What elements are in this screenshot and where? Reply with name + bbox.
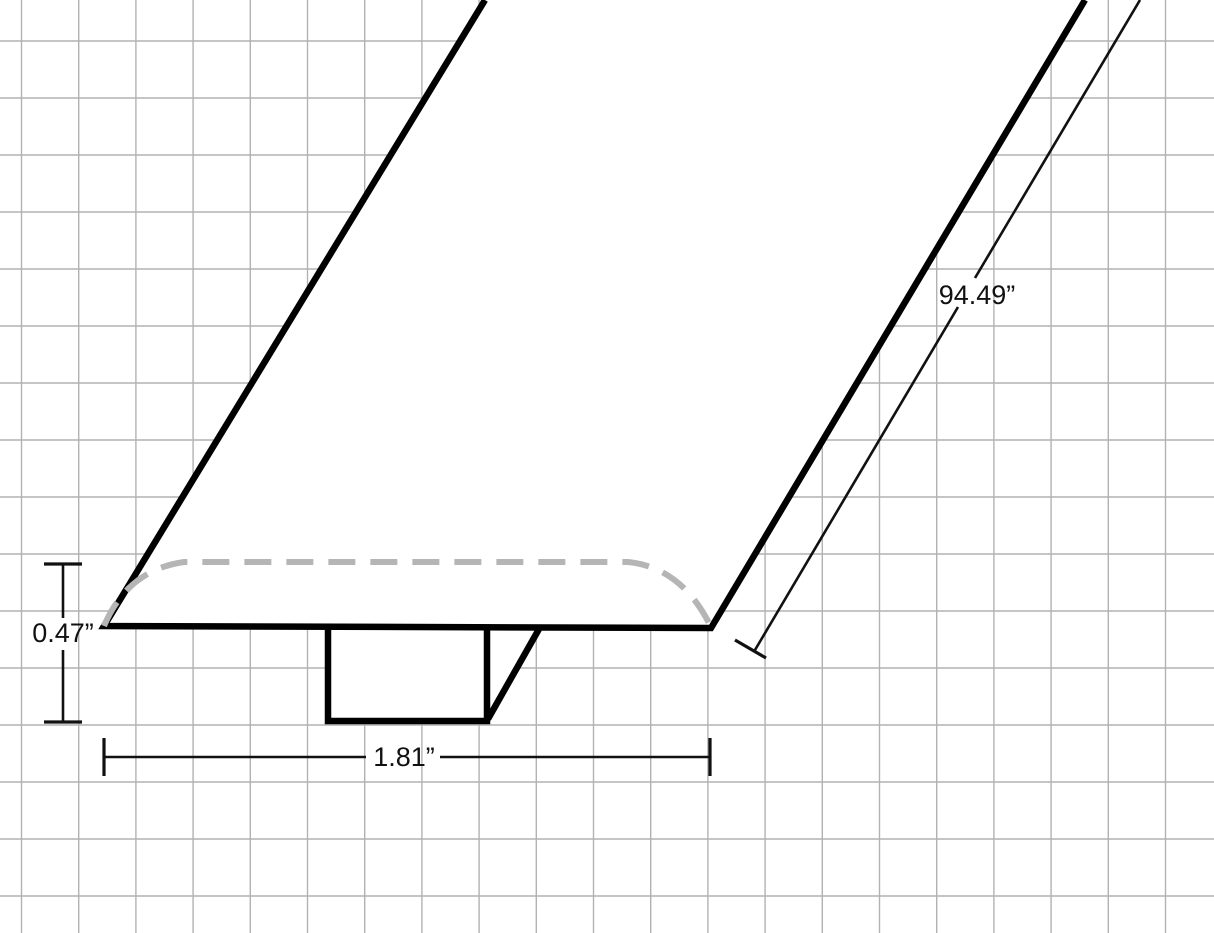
molding-surface <box>104 0 1085 721</box>
width-dimension: 1.81” <box>104 738 710 776</box>
length-dim-bottom-tick <box>735 640 766 658</box>
height-dimension: 0.47” <box>32 564 94 722</box>
height-dim-label: 0.47” <box>32 618 94 648</box>
drawing-sheet: 0.47” 1.81” 94.49” <box>0 0 1214 933</box>
width-dim-label: 1.81” <box>373 742 435 772</box>
t-molding-profile-drawing: 0.47” 1.81” 94.49” <box>0 0 1214 933</box>
length-dim-label: 94.49” <box>939 280 1016 310</box>
